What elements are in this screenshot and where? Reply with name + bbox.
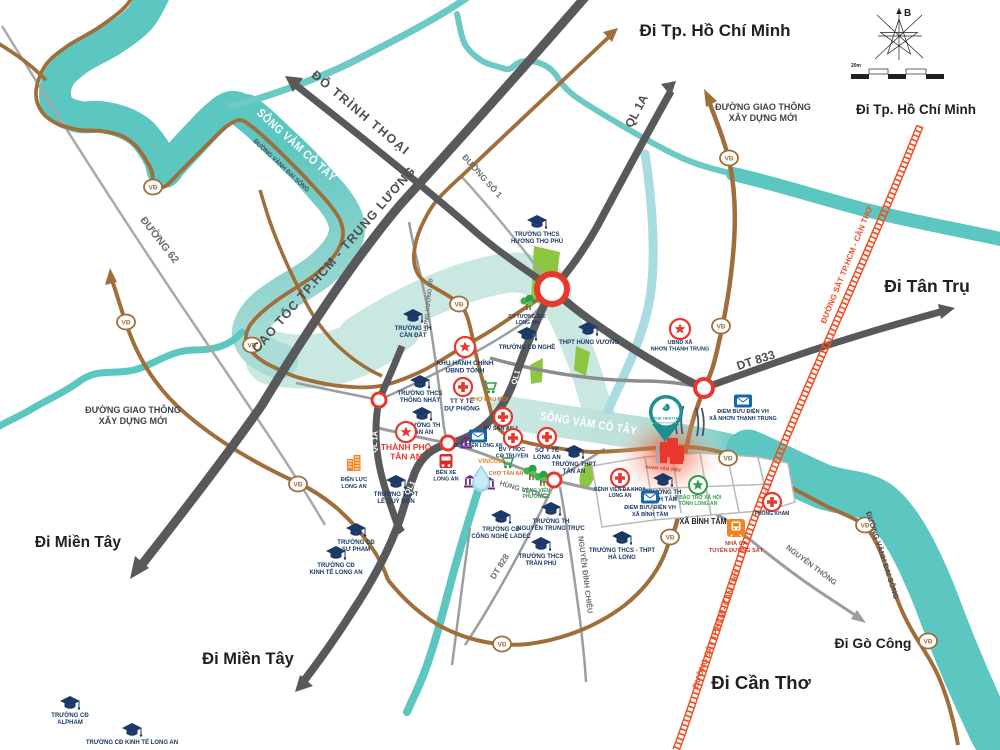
- svg-text:CẦN ĐẤT: CẦN ĐẤT: [400, 332, 427, 339]
- svg-text:B: B: [904, 8, 911, 19]
- svg-text:CÔNG NGHỆ LADEC: CÔNG NGHỆ LADEC: [471, 532, 531, 540]
- svg-text:ĐƯỜNG GIAO THÔNG: ĐƯỜNG GIAO THÔNG: [715, 101, 811, 112]
- svg-text:XÃ NHƠN THẠNH TRUNG: XÃ NHƠN THẠNH TRUNG: [709, 415, 777, 422]
- svg-text:TÂN AN: TÂN AN: [390, 451, 422, 462]
- svg-text:HÀ LONG: HÀ LONG: [608, 554, 636, 561]
- svg-text:CHỢ ĐẦU MỒI: CHỢ ĐẦU MỒI: [470, 396, 508, 403]
- svg-text:PHÒNG KHÁM: PHÒNG KHÁM: [755, 509, 790, 517]
- svg-text:Đi Tp. Hồ Chí Minh: Đi Tp. Hồ Chí Minh: [639, 21, 790, 40]
- svg-text:KINH TẾ LONG AN: KINH TẾ LONG AN: [309, 569, 362, 576]
- svg-text:TRƯỜNG THCS: TRƯỜNG THCS: [514, 230, 559, 238]
- svg-text:CV TƯỢNG ĐÀI: CV TƯỢNG ĐÀI: [508, 313, 546, 320]
- svg-text:Đi Tp. Hồ Chí Minh: Đi Tp. Hồ Chí Minh: [856, 102, 976, 117]
- svg-text:NGUYỄN TRUNG TRỰC: NGUYỄN TRUNG TRỰC: [517, 525, 585, 532]
- svg-text:VĐ: VĐ: [724, 156, 733, 163]
- svg-text:ALPHAM: ALPHAM: [57, 720, 83, 726]
- svg-text:TRƯỜNG CĐ: TRƯỜNG CĐ: [51, 711, 89, 719]
- svg-text:XÂY DỰNG MỚI: XÂY DỰNG MỚI: [99, 415, 167, 426]
- svg-text:VĐ: VĐ: [497, 642, 506, 649]
- svg-text:SỞ Y TẾ: SỞ Y TẾ: [535, 447, 559, 454]
- svg-text:VĐ: VĐ: [665, 535, 674, 542]
- svg-text:Đi Miền Tây: Đi Miền Tây: [35, 534, 122, 551]
- svg-text:TRƯỜNG THCS: TRƯỜNG THCS: [397, 389, 442, 397]
- svg-text:XÃ BÌNH TÂM: XÃ BÌNH TÂM: [632, 510, 668, 518]
- svg-text:LÊ QUÝ ĐÔN: LÊ QUÝ ĐÔN: [377, 497, 414, 505]
- svg-text:LONG AN: LONG AN: [341, 484, 366, 490]
- svg-text:XÃ BÌNH TÂM: XÃ BÌNH TÂM: [680, 515, 727, 526]
- svg-text:TRƯỜNG CĐ: TRƯỜNG CĐ: [482, 525, 520, 533]
- svg-text:TRẦN PHÚ: TRẦN PHÚ: [526, 560, 557, 567]
- svg-text:LONG AN: LONG AN: [533, 455, 560, 461]
- svg-text:XÂY DỰNG MỚI: XÂY DỰNG MỚI: [729, 112, 797, 123]
- svg-text:LONG AN: LONG AN: [609, 493, 632, 499]
- svg-text:TRƯỜNG THCS - THPT: TRƯỜNG THCS - THPT: [589, 546, 655, 554]
- svg-text:BẾN XE: BẾN XE: [436, 469, 457, 476]
- svg-text:THÀNH PHỐ: THÀNH PHỐ: [381, 441, 432, 452]
- svg-text:TRƯỜNG THPT: TRƯỜNG THPT: [552, 460, 597, 468]
- svg-text:VINCOM: VINCOM: [478, 458, 504, 465]
- svg-text:QL 1A: QL 1A: [369, 430, 379, 453]
- svg-text:Đi Miền Tây: Đi Miền Tây: [202, 650, 295, 668]
- svg-text:NHƠN THẠNH TRUNG: NHƠN THẠNH TRUNG: [651, 347, 709, 353]
- svg-text:VĐ: VĐ: [293, 482, 302, 489]
- svg-text:ĐIỆN LỰC: ĐIỆN LỰC: [341, 475, 368, 483]
- svg-text:TRƯỜNG CĐ: TRƯỜNG CĐ: [337, 538, 375, 546]
- svg-text:TRƯỜNG TH: TRƯỜNG TH: [533, 517, 570, 525]
- svg-text:Đi Cần Thơ: Đi Cần Thơ: [711, 672, 811, 693]
- svg-text:LONG AN: LONG AN: [433, 477, 458, 483]
- svg-text:LONG AN: LONG AN: [516, 320, 539, 326]
- svg-text:20m: 20m: [851, 63, 862, 69]
- svg-text:PREMIUM RESIDENCE: PREMIUM RESIDENCE: [655, 423, 677, 425]
- svg-text:TRƯỜNG CĐ: TRƯỜNG CĐ: [317, 561, 355, 569]
- svg-text:VĐ: VĐ: [923, 639, 932, 646]
- svg-text:UBND TỎNH: UBND TỎNH: [446, 366, 485, 375]
- svg-text:BV Y HỌC: BV Y HỌC: [499, 447, 525, 453]
- svg-text:UBND XÃ: UBND XÃ: [667, 339, 692, 346]
- svg-text:TRƯỜNG CĐ NGHỀ: TRƯỜNG CĐ NGHỀ: [499, 343, 555, 351]
- svg-text:ĐIỂM BƯU ĐIỆN VH: ĐIỂM BƯU ĐIỆN VH: [717, 407, 769, 415]
- svg-text:ĐƯỜNG GIAO THÔNG: ĐƯỜNG GIAO THÔNG: [85, 404, 181, 415]
- svg-text:DỰ PHÒNG: DỰ PHÒNG: [444, 404, 480, 413]
- svg-text:TUYẾN ĐƯỜNG SẮT: TUYẾN ĐƯỜNG SẮT: [709, 546, 764, 554]
- svg-text:VĐ: VĐ: [121, 320, 130, 327]
- svg-text:THPT HÙNG VƯƠNG: THPT HÙNG VƯƠNG: [559, 339, 619, 346]
- svg-text:P BẢO TRỢ XÃ HỘI: P BẢO TRỢ XÃ HỘI: [675, 493, 722, 501]
- svg-text:KHU HÀNH CHÍNH: KHU HÀNH CHÍNH: [436, 358, 493, 367]
- svg-text:CHỢ TÂN AN: CHỢ TÂN AN: [489, 470, 524, 477]
- svg-text:SƯ PHẠM: SƯ PHẠM: [342, 547, 370, 553]
- svg-text:Đi Tân Trụ: Đi Tân Trụ: [884, 276, 970, 296]
- svg-text:VĐ: VĐ: [723, 456, 732, 463]
- svg-text:HƯỜNG THỌ PHÚ: HƯỜNG THỌ PHÚ: [511, 237, 563, 245]
- svg-text:THỐNG NHẤT: THỐNG NHẤT: [400, 397, 440, 404]
- svg-text:THE HESTIA: THE HESTIA: [654, 417, 679, 421]
- svg-text:VĐ: VĐ: [716, 324, 725, 331]
- svg-text:TRƯỜNG CĐ KINH TẾ LONG AN: TRƯỜNG CĐ KINH TẾ LONG AN: [86, 738, 178, 746]
- svg-text:ĐIỂM BƯU ĐIỆN VH: ĐIỂM BƯU ĐIỆN VH: [624, 503, 676, 511]
- svg-text:TÂN AN: TÂN AN: [563, 468, 585, 475]
- svg-text:TRƯỜNG THCS: TRƯỜNG THCS: [518, 552, 563, 560]
- svg-text:TỎNH LONG AN: TỎNH LONG AN: [679, 500, 718, 507]
- svg-text:NHÀ GA: NHÀ GA: [725, 540, 747, 547]
- svg-text:VĐ: VĐ: [454, 302, 463, 309]
- svg-text:VĐ: VĐ: [148, 185, 157, 192]
- svg-text:Đi Gò Công: Đi Gò Công: [835, 635, 912, 651]
- svg-text:BỆNH VIỆN ĐA KHOA: BỆNH VIỆN ĐA KHOA: [594, 485, 646, 493]
